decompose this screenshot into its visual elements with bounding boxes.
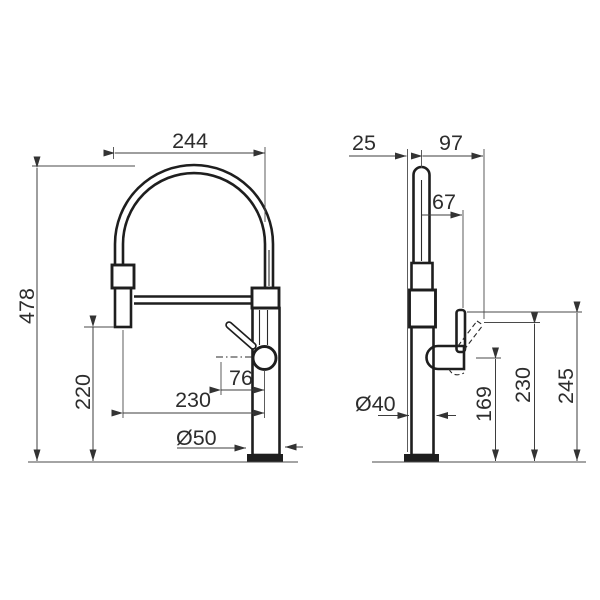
dim-label-handle-top-height: 245 <box>554 368 578 404</box>
spout-collar-upper <box>412 263 433 290</box>
dim-body-diameter: Ø40 <box>355 392 456 416</box>
handle-lever-tilted-dashed-1 <box>458 321 477 346</box>
dim-label-lever-offset: 76 <box>229 366 253 390</box>
dim-base-diameter: Ø50 <box>176 426 303 450</box>
dim-label-base-diameter: Ø50 <box>176 426 217 450</box>
dim-label-handle-reach: 97 <box>439 131 463 155</box>
technical-drawing-canvas: 244 478 220 230 76 <box>0 0 600 600</box>
dim-label-overall-height: 478 <box>15 288 39 324</box>
spout-collar-lower <box>410 290 436 327</box>
dim-spray-clearance: 220 <box>71 327 114 461</box>
dim-label-outlet-height: 169 <box>472 386 496 422</box>
body-column-side <box>412 327 434 455</box>
dim-label-handle-tip-height: 230 <box>511 367 535 403</box>
dim-label-lever-reach: 67 <box>432 190 456 214</box>
body-column <box>253 308 280 455</box>
base-flange-front <box>247 454 283 462</box>
dim-label-spray-clearance: 220 <box>71 374 95 410</box>
spout-arch-outer <box>115 165 273 288</box>
handle-housing-arm <box>427 346 465 369</box>
dim-label-spout-width: 244 <box>172 129 208 153</box>
dim-label-spout-setback: 25 <box>352 131 376 155</box>
base-flange-side <box>404 454 439 462</box>
dim-label-spray-offset: 230 <box>175 388 211 412</box>
front-view: 244 478 220 230 76 <box>15 129 303 462</box>
spray-head <box>115 288 131 327</box>
dim-outlet-height: 169 <box>472 358 501 461</box>
spout-arch-inner <box>123 173 265 288</box>
dim-overall-height: 478 <box>15 166 135 461</box>
dim-spout-width: 244 <box>114 129 266 222</box>
handle-lever-body <box>229 325 253 346</box>
handle-pivot-ball <box>253 347 276 370</box>
spray-collar <box>112 265 134 288</box>
side-view: 25 97 67 Ø40 169 230 <box>349 131 586 462</box>
handle-lever-tilted-dashed-cap <box>477 321 483 325</box>
handle-lever-tilted-dashed-2 <box>464 325 483 350</box>
faucet-dimension-drawing: 244 478 220 230 76 <box>0 0 600 600</box>
dim-label-body-diameter: Ø40 <box>355 392 396 416</box>
body-collar <box>252 288 279 308</box>
